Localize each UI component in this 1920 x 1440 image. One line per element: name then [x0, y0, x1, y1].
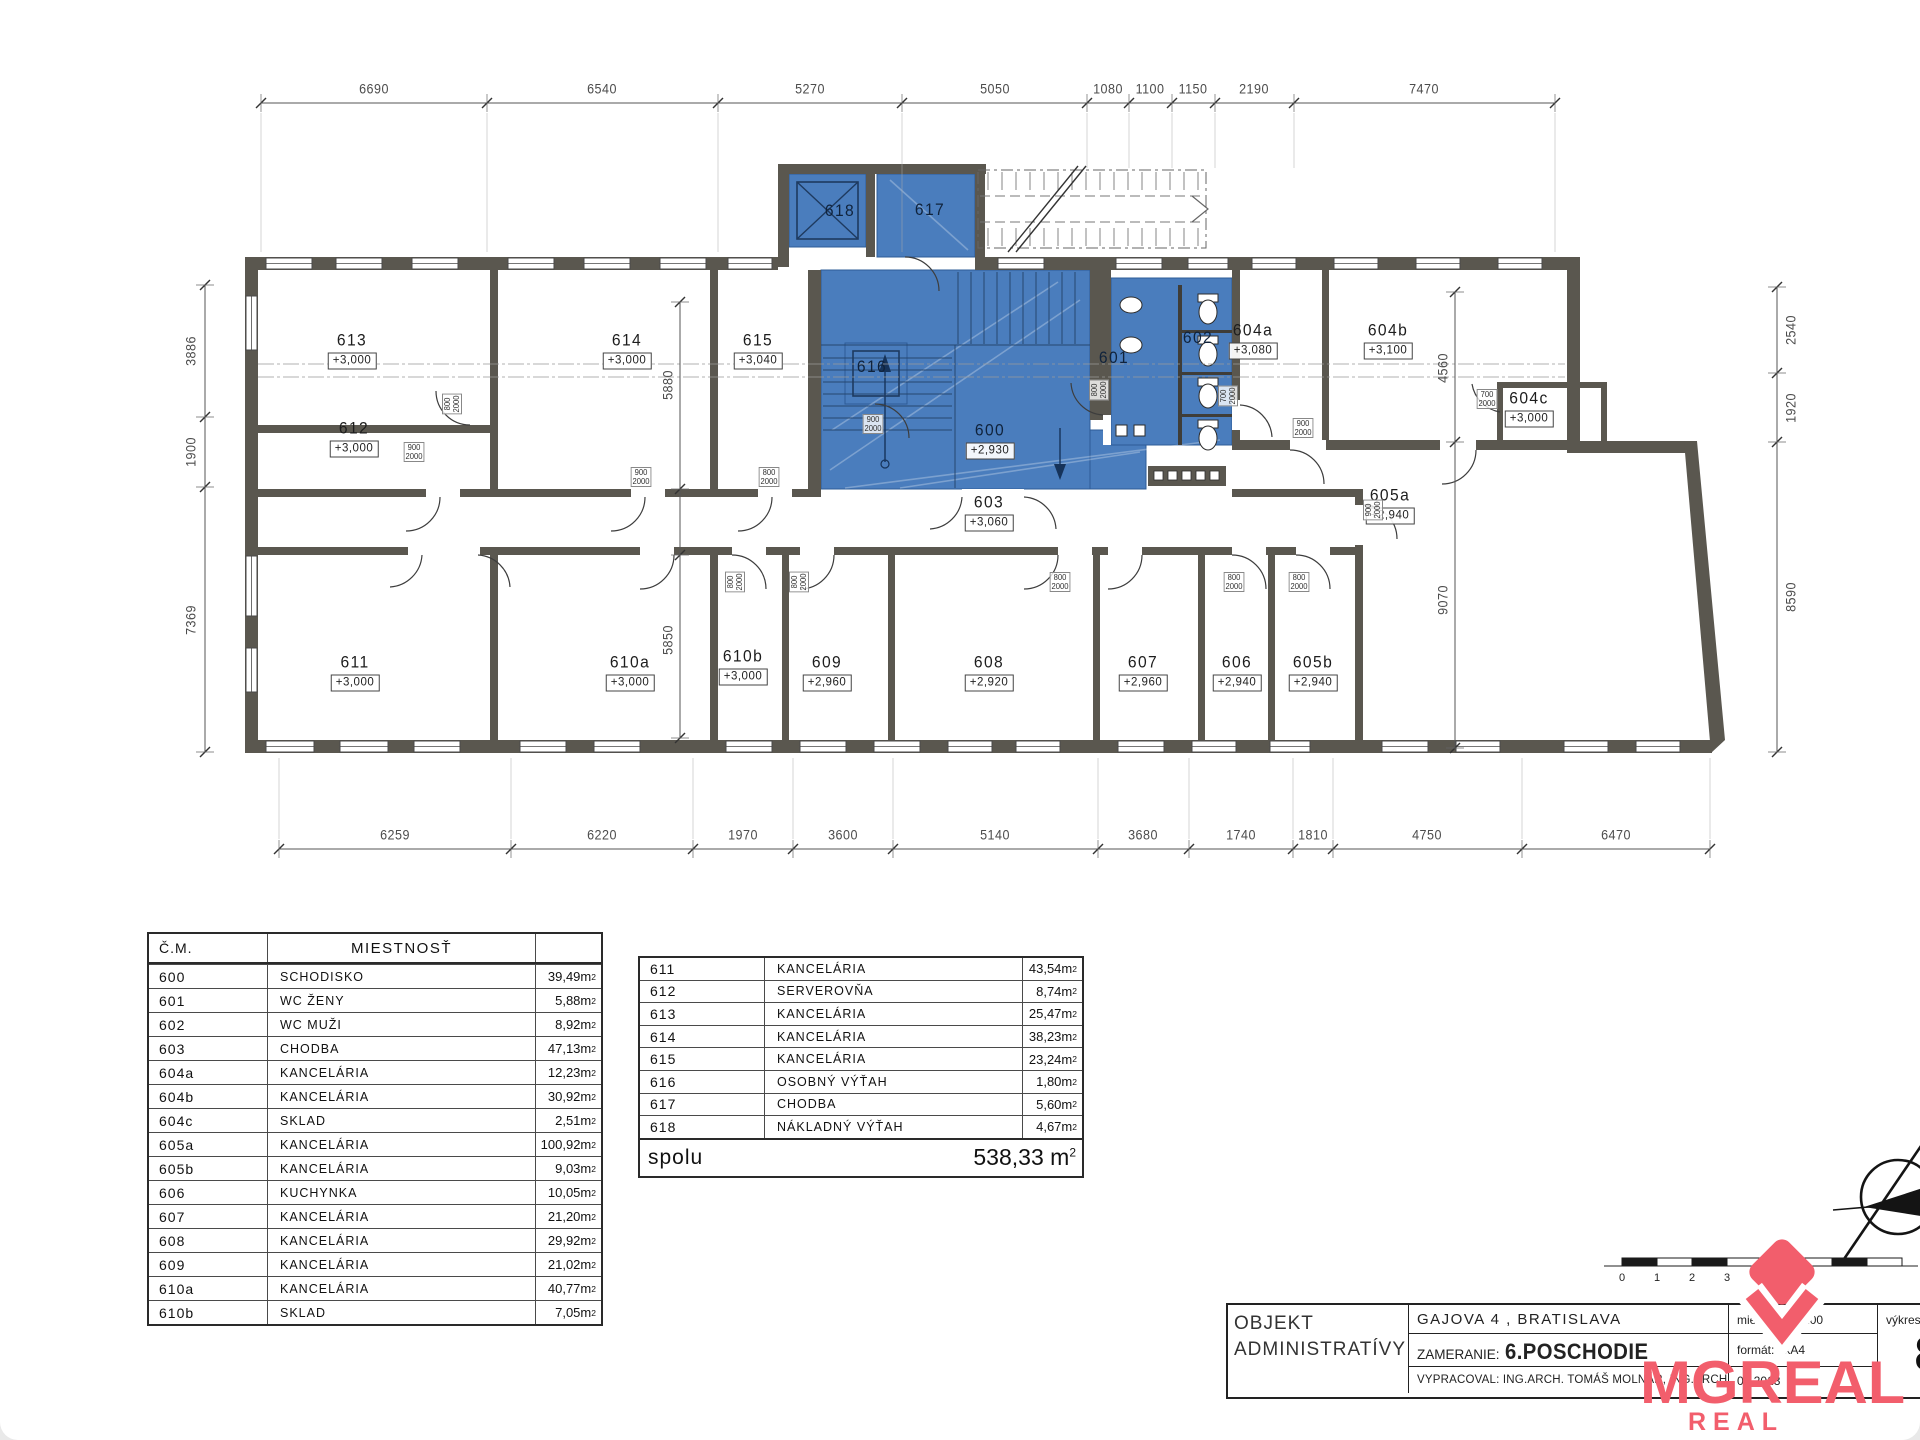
table-row: 604bKANCELÁRIA30,92 m2 [149, 1084, 601, 1108]
table-row: 600SCHODISKO39,49 m2 [149, 964, 601, 988]
table-row: 611KANCELÁRIA43,54 m2 [640, 958, 1082, 980]
table-row: 606KUCHYNKA10,05 m2 [149, 1180, 601, 1204]
table-row: 605bKANCELÁRIA9,03 m2 [149, 1156, 601, 1180]
table-row: 615KANCELÁRIA23,24 m2 [640, 1047, 1082, 1070]
table-row: 608KANCELÁRIA29,92 m2 [149, 1228, 601, 1252]
room-table-right: 611KANCELÁRIA43,54 m2612SERVEROVŇA8,74 m… [638, 956, 1084, 1178]
logo-tagline: REAL ESTATE [1688, 1408, 1920, 1440]
table-row: 604aKANCELÁRIA12,23 m2 [149, 1060, 601, 1084]
table-row: 603CHODBA47,13 m2 [149, 1036, 601, 1060]
survey-label: ZAMERANIE: [1417, 1347, 1500, 1362]
table-row: 616OSOBNÝ VÝŤAH1,80 m2 [640, 1070, 1082, 1093]
logo-brand-text: MGREAL [1640, 1348, 1905, 1417]
table-header: Č.M.MIESTNOSŤ [149, 934, 601, 964]
title-object-cell: OBJEKT ADMINISTRATÍVY [1228, 1305, 1408, 1393]
mgreal-logo-icon [1736, 1236, 1828, 1354]
table-row: 617CHODBA5,60 m2 [640, 1093, 1082, 1116]
scale-bar-label: 0 [1619, 1272, 1625, 1284]
object-line1: OBJEKT [1234, 1313, 1314, 1334]
table-row: 609KANCELÁRIA21,02 m2 [149, 1252, 601, 1276]
table-row: 604cSKLAD2,51 m2 [149, 1108, 601, 1132]
room-table-left: Č.M.MIESTNOSŤ600SCHODISKO39,49 m2601WC Ž… [147, 932, 603, 1326]
table-row: 601WC ŽENY5,88 m2 [149, 988, 601, 1012]
drawing-sheet: 613+3,000612+3,000614+3,000615+3,0406166… [0, 0, 1920, 1440]
table-row: 612SERVEROVŇA8,74 m2 [640, 980, 1082, 1003]
table-row: 605aKANCELÁRIA100,92 m2 [149, 1132, 601, 1156]
table-row: 614KANCELÁRIA38,23 m2 [640, 1025, 1082, 1048]
object-line2: ADMINISTRATÍVY [1234, 1339, 1406, 1360]
survey-value: 6.POSCHODIE [1505, 1339, 1648, 1365]
table-total-row: spolu538,33 m2 [640, 1138, 1082, 1176]
table-row: 602WC MUŽI8,92 m2 [149, 1012, 601, 1036]
table-row: 613KANCELÁRIA25,47 m2 [640, 1002, 1082, 1025]
table-row: 607KANCELÁRIA21,20 m2 [149, 1204, 601, 1228]
table-row: 610aKANCELÁRIA40,77 m2 [149, 1276, 601, 1300]
table-row: 610bSKLAD7,05 m2 [149, 1300, 601, 1324]
table-row: 618NÁKLADNÝ VÝŤAH4,67 m2 [640, 1115, 1082, 1138]
mgreal-logo: MGREAL REAL ESTATE [1628, 1236, 1920, 1440]
